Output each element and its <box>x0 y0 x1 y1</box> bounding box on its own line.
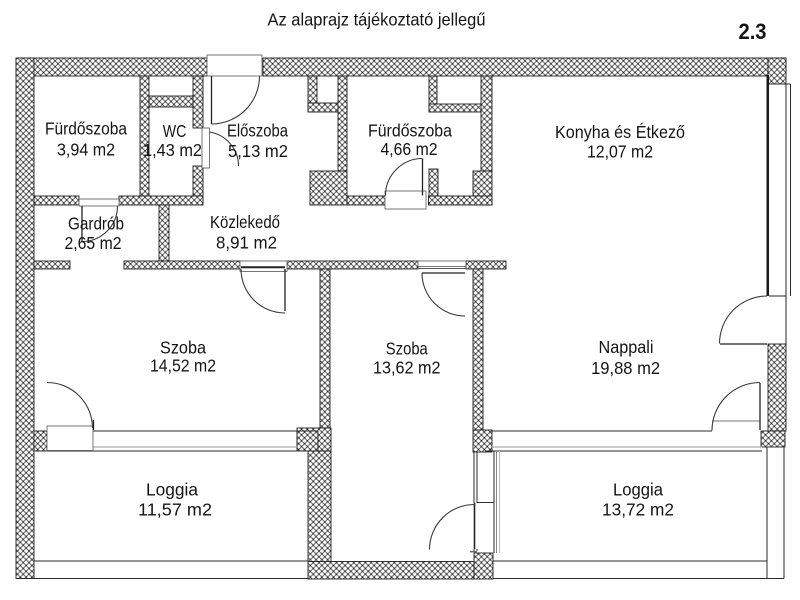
svg-text:Gardrób: Gardrób <box>68 214 124 234</box>
svg-text:8,91 m2: 8,91 m2 <box>216 233 277 253</box>
svg-text:14,52 m2: 14,52 m2 <box>150 356 216 376</box>
svg-text:5,13 m2: 5,13 m2 <box>228 141 288 161</box>
svg-text:Nappali: Nappali <box>599 337 654 357</box>
svg-text:Szoba: Szoba <box>160 338 206 358</box>
svg-text:1,43 m2: 1,43 m2 <box>143 140 202 160</box>
svg-text:Loggia: Loggia <box>146 480 198 500</box>
svg-text:2.3: 2.3 <box>739 19 767 44</box>
svg-text:4,66 m2: 4,66 m2 <box>381 139 438 159</box>
svg-text:13,72 m2: 13,72 m2 <box>602 500 674 520</box>
svg-text:Fürdőszoba: Fürdőszoba <box>368 121 452 141</box>
svg-text:Közlekedő: Közlekedő <box>210 212 280 232</box>
svg-text:12,07 m2: 12,07 m2 <box>587 142 653 162</box>
svg-text:19,88 m2: 19,88 m2 <box>591 358 660 378</box>
svg-text:Konyha és Étkező: Konyha és Étkező <box>555 122 685 142</box>
svg-text:11,57 m2: 11,57 m2 <box>138 500 212 520</box>
svg-text:WC: WC <box>163 121 187 141</box>
svg-text:Az alaprajz tájékoztató jelleg: Az alaprajz tájékoztató jellegű <box>268 9 486 29</box>
svg-text:Szoba: Szoba <box>386 339 428 359</box>
svg-text:Előszoba: Előszoba <box>227 121 288 141</box>
svg-text:3,94 m2: 3,94 m2 <box>57 140 115 160</box>
svg-text:Loggia: Loggia <box>613 480 663 500</box>
svg-text:13,62 m2: 13,62 m2 <box>373 358 441 378</box>
svg-text:2,65 m2: 2,65 m2 <box>65 233 122 253</box>
svg-text:Fürdőszoba: Fürdőszoba <box>45 119 127 139</box>
